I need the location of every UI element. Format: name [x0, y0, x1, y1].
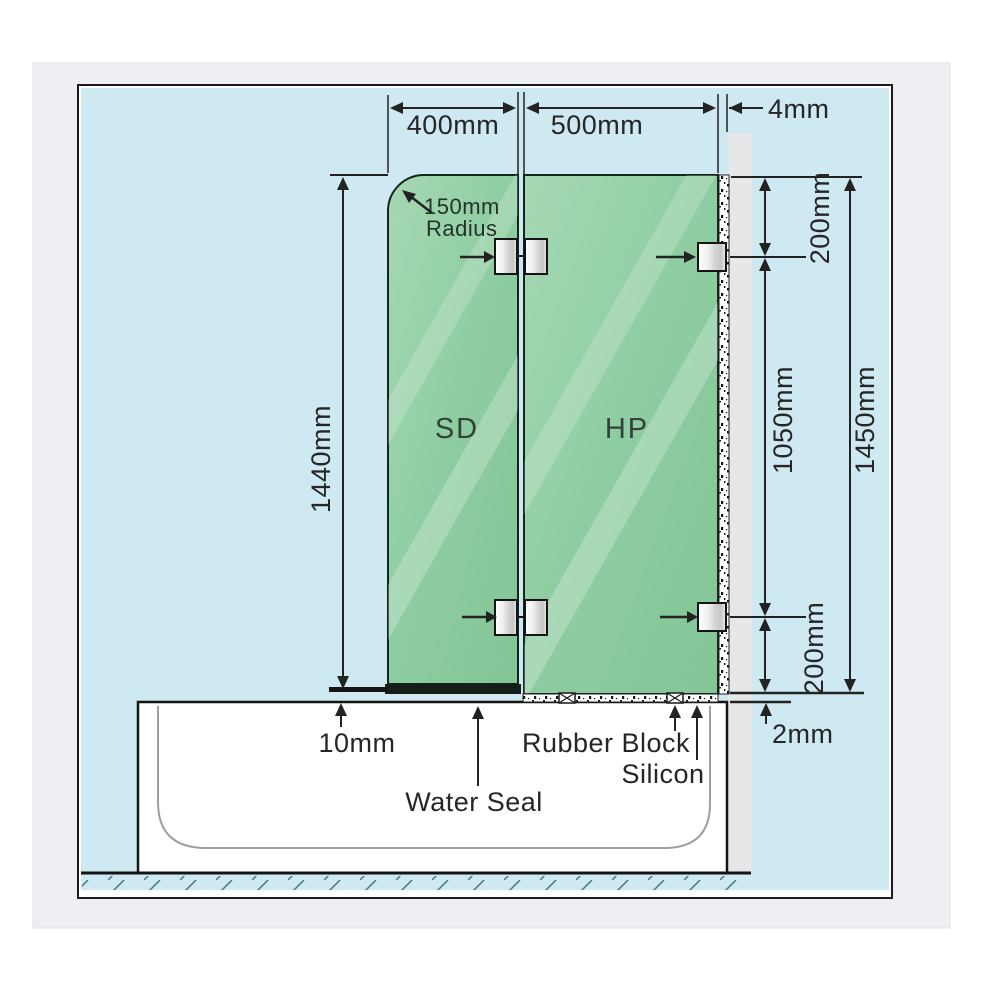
dim-2mm: 2mm — [772, 719, 834, 749]
upper-wall-bracket — [698, 243, 726, 271]
dim-4mm: 4mm — [768, 94, 830, 124]
sd-panel-label: SD — [435, 413, 479, 445]
water-seal-strip — [385, 684, 521, 694]
silicon-label: Silicon — [621, 759, 704, 789]
radius-label-line2: Radius — [426, 216, 497, 241]
installation-diagram: 400mm 500mm 4mm 150mm Radius SD HP 1440m… — [0, 0, 1000, 1000]
dim-1450mm: 1450mm — [850, 366, 880, 474]
screenshot-root: 400mm 500mm 4mm 150mm Radius SD HP 1440m… — [0, 0, 1000, 1000]
glass-bottom-tick — [329, 687, 387, 692]
rubber-block-label: Rubber Block — [522, 728, 690, 758]
lower-wall-bracket — [698, 603, 726, 631]
rubber-block-left — [559, 693, 575, 703]
dim-1050mm: 1050mm — [768, 366, 798, 474]
water-seal-label: Water Seal — [405, 787, 543, 817]
floor-hatch — [82, 876, 750, 890]
dim-200mm-bottom: 200mm — [799, 602, 829, 695]
dim-1440mm: 1440mm — [306, 405, 336, 513]
dim-500mm: 500mm — [551, 110, 644, 140]
dim-200mm-top: 200mm — [805, 172, 835, 265]
dim-10mm: 10mm — [318, 728, 395, 758]
hp-panel-label: HP — [605, 413, 649, 445]
rubber-block-right — [667, 693, 683, 703]
wall — [728, 133, 752, 873]
dim-400mm: 400mm — [407, 110, 500, 140]
bottom-silicon-speckle — [523, 694, 718, 702]
